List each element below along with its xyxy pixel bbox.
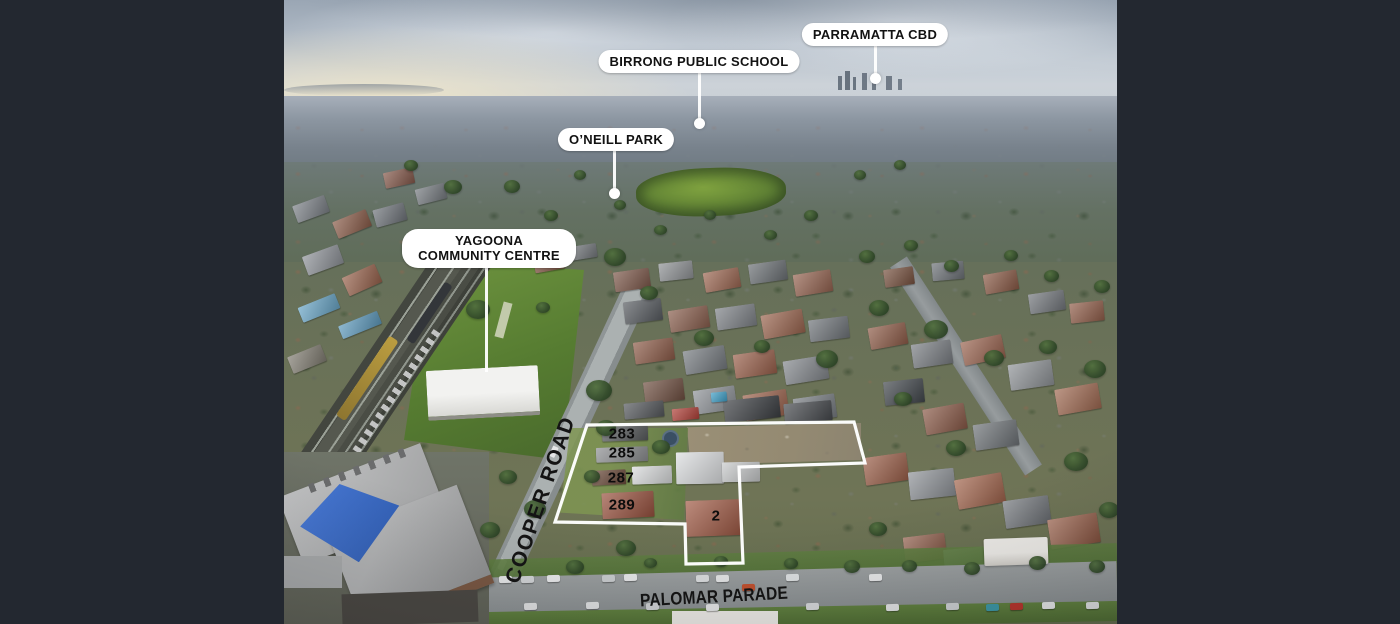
lot-number-283: 283 [609,426,636,443]
callout-dot [609,188,620,199]
callout-stem [698,71,701,124]
lot-number-2: 2 [712,508,721,525]
callout-pill: O’NEILL PARK [558,128,674,151]
callout-pill: YAGOONA COMMUNITY CENTRE [402,229,576,268]
aerial-photo: COOPER ROAD PALOMAR PARADE 283 285 287 2… [284,0,1117,624]
stage: COOPER ROAD PALOMAR PARADE 283 285 287 2… [0,0,1400,624]
lot-number-285: 285 [609,445,636,462]
callout-dot [694,118,705,129]
callout-dot [870,73,881,84]
lot-number-287: 287 [608,470,635,487]
callout-pill: PARRAMATTA CBD [802,23,948,46]
callout-pill: BIRRONG PUBLIC SCHOOL [599,50,800,73]
property-boundary-outline [555,422,865,564]
lot-number-289: 289 [609,497,636,514]
callout-stem [485,260,488,372]
